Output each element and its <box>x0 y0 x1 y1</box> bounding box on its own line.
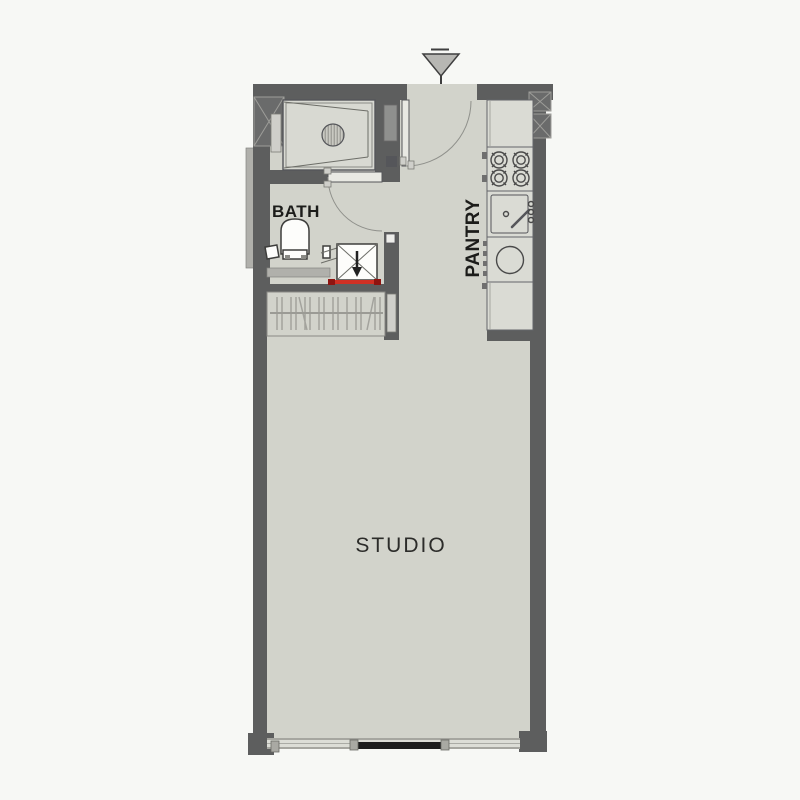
floor-plan: BATH PANTRY STUDIO <box>0 0 800 800</box>
door-hinge <box>408 161 414 169</box>
washer-alert-line <box>329 280 379 284</box>
sliding-door-cap <box>441 740 449 750</box>
washer-alert-end <box>374 279 381 285</box>
pantry-label: PANTRY <box>463 199 484 278</box>
window-wall <box>267 738 520 752</box>
shower-drain-icon <box>322 124 344 146</box>
pantry-kitchen <box>482 100 534 330</box>
window-post <box>271 741 279 752</box>
stove-knob <box>482 175 487 182</box>
base-cabinet <box>487 282 533 330</box>
toilet-foot <box>285 255 290 259</box>
stove-knob <box>482 152 487 159</box>
entrance-floor <box>407 84 477 104</box>
wall-pantry-bottom <box>487 330 533 341</box>
countertop <box>487 100 533 147</box>
wall-corner-bottom-right <box>519 731 547 752</box>
washer-alert-end <box>328 279 335 285</box>
shower-left-inset <box>271 114 281 152</box>
studio-label: STUDIO <box>355 534 446 557</box>
door-hinge <box>400 157 406 165</box>
bath-label: BATH <box>272 202 320 221</box>
toilet-foot <box>301 255 306 259</box>
cabinet-hinge <box>482 283 487 289</box>
wall-niche <box>386 156 397 167</box>
wall-cabinet <box>384 105 397 141</box>
toilet-icon <box>281 219 309 254</box>
door-stop <box>324 181 331 187</box>
bath-divider-wall <box>267 268 330 277</box>
door-stop <box>324 168 331 174</box>
entrance-marker-icon <box>423 54 459 76</box>
sliding-door-cap <box>350 740 358 750</box>
toilet-paper-holder-box <box>265 245 279 259</box>
wardrobe <box>267 292 396 336</box>
washing-machine-icon <box>487 237 533 282</box>
toilet-paper-holder-icon <box>265 245 279 259</box>
wall-cap <box>386 234 395 243</box>
wall-left-lower <box>253 309 267 738</box>
wall-closet-top <box>253 284 398 292</box>
wall-bath-door-left <box>270 170 328 184</box>
wardrobe-side-panel <box>387 294 396 332</box>
entrance-door-leaf <box>402 100 409 166</box>
sliding-door-panel <box>357 742 445 749</box>
bath-door-leaf <box>328 172 382 182</box>
